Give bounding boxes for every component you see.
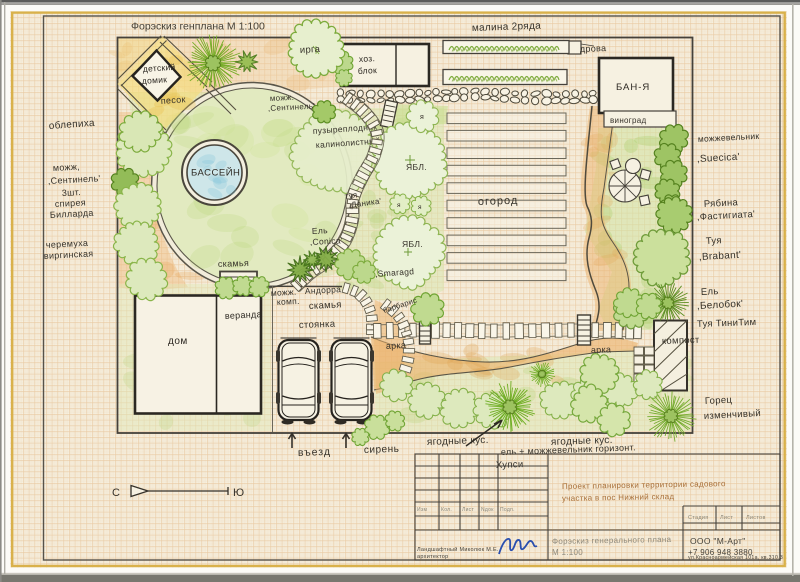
svg-text:Ю: Ю	[233, 487, 244, 499]
svg-text:3шт.: 3шт.	[62, 187, 82, 198]
svg-text:можж.: можж.	[270, 93, 295, 103]
svg-text:Форэскиз генплана М 1:100: Форэскиз генплана М 1:100	[131, 21, 265, 33]
svg-text:Туя ТиниТим: Туя ТиниТим	[697, 317, 757, 330]
svg-text:въезд: въезд	[298, 446, 332, 459]
svg-text:блок: блок	[358, 65, 378, 76]
svg-text:огород: огород	[478, 195, 519, 208]
svg-text:,Brabant': ,Brabant'	[699, 250, 742, 263]
svg-text:сирень: сирень	[364, 444, 400, 456]
svg-text:домик: домик	[141, 74, 167, 86]
svg-text:,Suecica': ,Suecica'	[697, 152, 740, 165]
svg-text:ирга: ирга	[300, 44, 321, 56]
svg-text:Андорра: Андорра	[305, 284, 342, 296]
svg-text:комп.: комп.	[277, 296, 300, 307]
svg-text:хоз.: хоз.	[359, 53, 376, 64]
svg-text:спирея: спирея	[55, 197, 87, 209]
svg-text:скамья: скамья	[218, 258, 250, 269]
svg-text:Листов: Листов	[746, 515, 766, 521]
svg-text:,Белобок': ,Белобок'	[697, 298, 744, 312]
svg-text:стоянка: стоянка	[299, 319, 336, 331]
svg-text:Изм: Изм	[417, 507, 427, 513]
svg-text:скамья: скамья	[309, 299, 342, 312]
svg-text:ООО "М-Арт": ООО "М-Арт"	[690, 536, 746, 546]
svg-text:БАССЕЙН: БАССЕЙН	[191, 167, 240, 179]
svg-text:ул.Красноармейская 101а, кв.3: ул.Красноармейская 101а, кв.310.3	[688, 554, 783, 561]
svg-text:дрова: дрова	[580, 43, 607, 54]
svg-text:я: я	[397, 202, 401, 209]
svg-text:Рябина: Рябина	[704, 197, 739, 210]
svg-text:ягодные кус.: ягодные кус.	[427, 435, 489, 448]
svg-text:можж,: можж,	[53, 162, 81, 173]
svg-text:я: я	[418, 204, 422, 211]
svg-text:компост: компост	[662, 335, 700, 347]
svg-text:Туя: Туя	[706, 235, 723, 247]
svg-text:,Conica': ,Conica'	[310, 235, 343, 247]
svg-text:М 1:100: М 1:100	[552, 548, 583, 557]
svg-text:виноград: виноград	[610, 116, 647, 125]
svg-text:дом: дом	[168, 336, 188, 347]
svg-text:Хупси: Хупси	[496, 459, 524, 471]
svg-text:веранда: веранда	[225, 309, 263, 321]
svg-text:БАН-Я: БАН-Я	[616, 82, 650, 93]
svg-text:Лист: Лист	[720, 515, 733, 521]
svg-text:ЯБЛ.: ЯБЛ.	[402, 239, 423, 249]
svg-text:песок: песок	[160, 94, 186, 106]
svg-text:Подп.: Подп.	[500, 507, 515, 513]
svg-text:Ель: Ель	[312, 225, 329, 236]
svg-text:Ландшафтный Миколюк М.Е.: Ландшафтный Миколюк М.Е.	[417, 546, 499, 553]
svg-text:Лист: Лист	[462, 507, 474, 513]
svg-text:Nдок: Nдок	[481, 507, 494, 513]
svg-text:С: С	[112, 487, 120, 499]
svg-text:Стадия: Стадия	[688, 515, 709, 521]
svg-text:арка: арка	[386, 340, 407, 351]
svg-text:Горец: Горец	[705, 395, 733, 407]
svg-text:ЯБЛ.: ЯБЛ.	[406, 162, 427, 172]
svg-text:архитектор: архитектор	[417, 554, 448, 560]
svg-text:я: я	[420, 114, 424, 121]
svg-text:Кол.: Кол.	[441, 507, 452, 513]
svg-text:Ель: Ель	[701, 286, 719, 298]
